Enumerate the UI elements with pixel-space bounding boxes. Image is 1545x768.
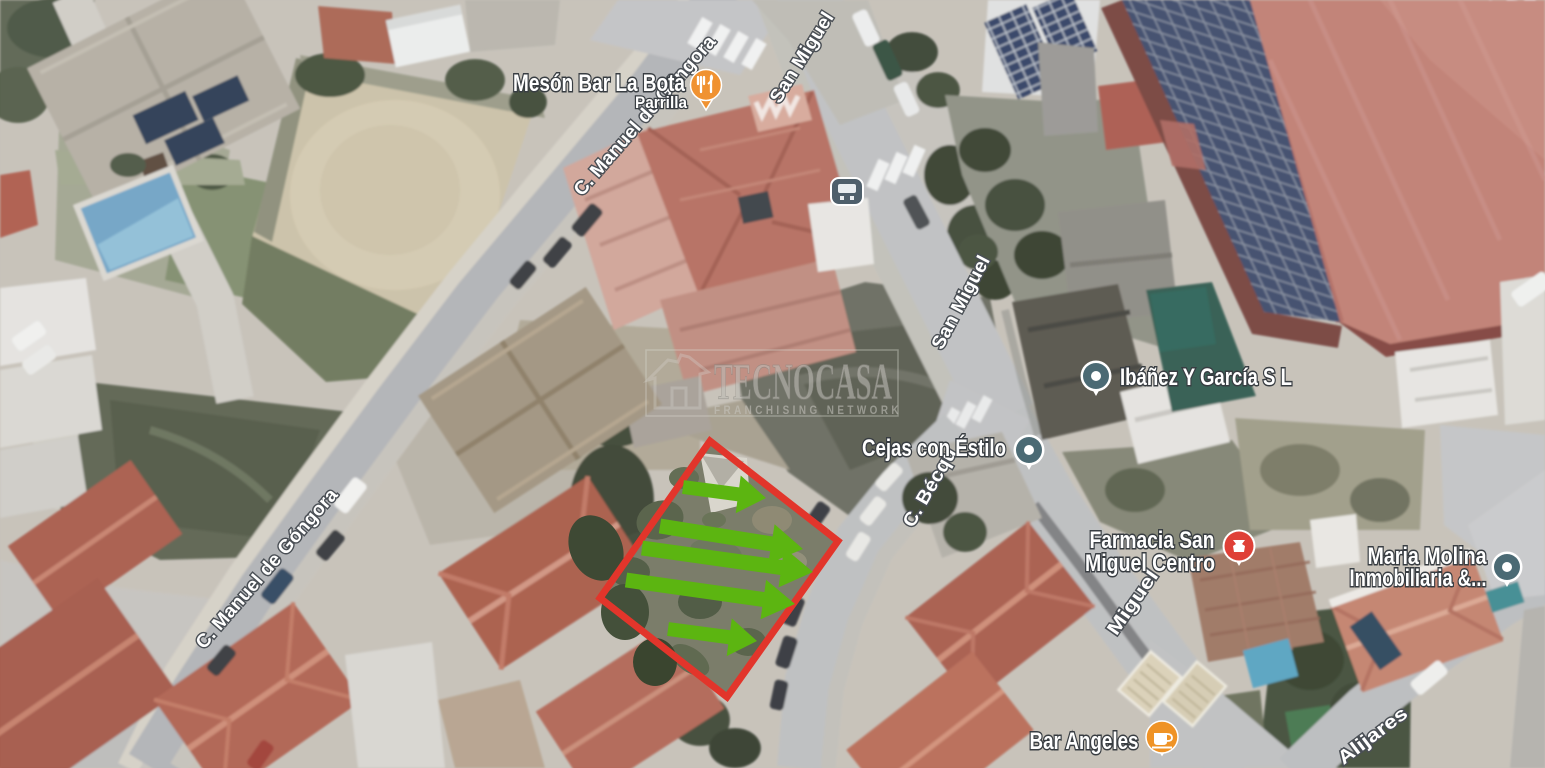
svg-text:Ibáñez Y García S L: Ibáñez Y García S L — [1120, 364, 1292, 391]
svg-text:Parrilla: Parrilla — [635, 94, 688, 112]
svg-text:Bar Angeles: Bar Angeles — [1030, 728, 1139, 755]
svg-text:Mesón Bar La Bota: Mesón Bar La Bota — [513, 70, 686, 97]
svg-text:FRANCHISING NETWORK: FRANCHISING NETWORK — [714, 405, 902, 417]
svg-text:Cejas con Éstilo: Cejas con Éstilo — [862, 434, 1006, 462]
svg-text:Miguel Centro: Miguel Centro — [1085, 550, 1215, 577]
svg-text:TECNOCASA: TECNOCASA — [714, 354, 892, 411]
svg-text:Inmobiliaria &...: Inmobiliaria &... — [1350, 565, 1487, 592]
